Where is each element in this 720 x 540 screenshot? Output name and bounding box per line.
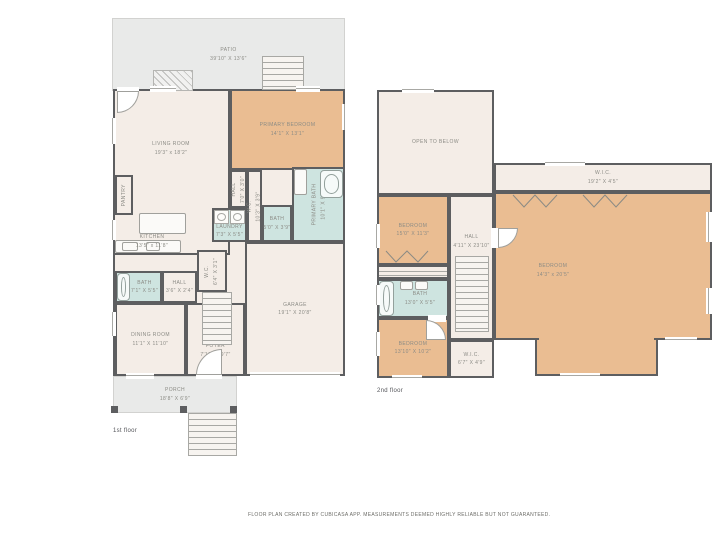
room-hall-lower: HALL 3'6" x 2'4"	[162, 271, 197, 303]
closet-bifold-icon	[582, 194, 628, 213]
window-marker	[110, 220, 116, 240]
room-name: BATH	[131, 279, 158, 288]
room-wc-upper: W.C. 10'3" x 3'9"	[247, 170, 262, 242]
room-wc-stairs-label: W.C. 6'4" x 3'1"	[204, 257, 221, 284]
room-kitchen-label: KITCHEN 13'5" x 11'8"	[117, 233, 187, 250]
room-dims: 5'0" x 3'9"	[263, 224, 290, 233]
room-name: DINING ROOM	[131, 331, 170, 340]
room-bedroom-left-top-label: BEDROOM 15'0" x 11'3"	[396, 222, 429, 239]
room-garage: GARAGE 19'1" x 20'8"	[245, 242, 345, 376]
room-dims: 13'5" x 11'8"	[117, 242, 187, 251]
room-wc-stairs: W.C. 6'4" x 3'1"	[197, 250, 227, 292]
room-name: BEDROOM	[518, 262, 588, 271]
room-dims: 13'0" x 5'5"	[405, 299, 435, 308]
room-open-to-below: OPEN TO BELOW	[377, 90, 494, 195]
room-dims: 18'8" x 6'9"	[160, 395, 190, 404]
kitchen-island	[139, 213, 186, 234]
room-primary-bedroom: PRIMARY BEDROOM 14'1" x 13'1"	[230, 89, 345, 170]
room-dims: 14'3" x 20'5"	[518, 271, 588, 280]
room-dims: 13'10" x 10'2"	[395, 348, 432, 357]
wall-opening-patch	[539, 336, 654, 343]
room-open-to-below-label: OPEN TO BELOW	[412, 138, 459, 147]
room-dims: 4'11" x 23'10"	[453, 242, 489, 251]
window-marker	[126, 373, 154, 379]
porch-staircase	[188, 413, 237, 456]
window-marker	[665, 337, 697, 343]
bathroom-vanity	[294, 169, 307, 195]
room-pantry: PANTRY	[115, 175, 133, 215]
bathroom-sink	[400, 281, 413, 290]
room-porch: PORCH 18'8" x 6'9"	[113, 376, 237, 413]
room-patio-label: PATIO 39'10" x 13'6"	[210, 46, 247, 63]
patio-door-marker	[150, 86, 176, 92]
room-name: OPEN TO BELOW	[412, 138, 459, 147]
window-marker	[392, 375, 422, 381]
window-marker	[374, 285, 380, 305]
room-name: HALL	[230, 175, 239, 202]
bathtub-icon	[117, 273, 130, 301]
room-name: BATH	[263, 215, 290, 224]
room-dims: 6'7" x 4'9"	[458, 359, 485, 368]
room-dims: 19'2" x 4'5"	[588, 178, 618, 187]
room-name: HALL	[166, 279, 193, 288]
interior-staircase	[202, 292, 232, 345]
closet-bifold-icon	[385, 250, 429, 268]
interior-staircase-floor2	[455, 256, 489, 332]
room-name: HALL	[464, 233, 478, 242]
room-bath-small-label: BATH 5'0" x 3'9"	[263, 215, 290, 232]
room-dims: 7'1" x 5'5"	[131, 287, 158, 296]
room-bedroom-right-label: BEDROOM 14'3" x 20'5"	[518, 262, 588, 279]
room-garage-label: GARAGE 19'1" x 20'8"	[278, 301, 311, 318]
window-marker	[296, 86, 320, 92]
room-bath-small: BATH 5'0" x 3'9"	[262, 205, 292, 242]
room-dims: 19'1" x 20'8"	[278, 309, 311, 318]
bathtub-icon	[379, 281, 394, 316]
room-dims: 11'1" x 11'10"	[131, 340, 170, 349]
room-porch-label: PORCH 18'8" x 6'9"	[160, 386, 190, 403]
room-bedroom-left-bottom-label: BEDROOM 13'10" x 10'2"	[395, 340, 432, 357]
room-name: LIVING ROOM	[133, 140, 209, 149]
window-marker	[110, 312, 116, 336]
dryer-icon	[230, 210, 245, 224]
window-marker	[374, 224, 380, 248]
room-pantry-label: PANTRY	[120, 184, 129, 206]
room-living-room-label: LIVING ROOM 19'3" x 18'2"	[133, 140, 209, 157]
window-marker	[545, 160, 585, 166]
footer-disclaimer: FLOOR PLAN CREATED BY CUBICASA APP. MEAS…	[248, 512, 550, 518]
room-name: PRIMARY BEDROOM	[260, 121, 316, 130]
room-name: BEDROOM	[395, 340, 432, 349]
room-wic-small-label: W.I.C. 6'7" x 4'9"	[458, 351, 485, 368]
porch-post	[230, 406, 237, 413]
room-name: BATH	[405, 290, 435, 299]
room-hall-upper: HALL 7'0" x 3'0"	[230, 170, 247, 208]
floor2-label: 2nd floor	[377, 388, 403, 394]
room-name: W.I.C.	[588, 169, 618, 178]
room-bath-floor2-label: BATH 13'0" x 5'5"	[391, 290, 435, 307]
room-name: BEDROOM	[396, 222, 429, 231]
washer-icon	[214, 210, 229, 224]
bedroom-door-gap	[491, 228, 498, 248]
room-name: KITCHEN	[117, 233, 187, 242]
room-dims: 15'0" x 11'3"	[396, 230, 429, 239]
room-name: GARAGE	[278, 301, 311, 310]
garage-door-marker	[250, 372, 340, 379]
room-wic-top: W.I.C. 19'2" x 4'5"	[494, 163, 712, 192]
closet-bifold-icon	[512, 194, 558, 213]
window-marker	[706, 288, 712, 314]
window-marker	[110, 118, 116, 144]
room-name: PANTRY	[120, 184, 129, 206]
room-wc-upper-label: W.C. 10'3" x 3'9"	[246, 191, 263, 221]
room-primary-bedroom-label: PRIMARY BEDROOM 14'1" x 13'1"	[260, 121, 316, 138]
room-dims: 3'6" x 2'4"	[166, 287, 193, 296]
room-dims: 39'10" x 13'6"	[210, 55, 247, 64]
room-hall-lower-label: HALL 3'6" x 2'4"	[166, 279, 193, 296]
floor1-label: 1st floor	[113, 428, 137, 434]
room-hall-floor2-label: HALL 4'11" x 23'10"	[451, 233, 492, 250]
patio-staircase	[262, 56, 304, 90]
room-name: PORCH	[160, 386, 190, 395]
window-marker	[706, 212, 712, 242]
room-dims: 7'3" x 5'5"	[216, 231, 243, 240]
floor-plan-canvas: PATIO 39'10" x 13'6" LIVING ROOM 19'3" x…	[0, 0, 720, 540]
room-name: PATIO	[210, 46, 247, 55]
room-dims: 6'4" x 3'1"	[212, 257, 221, 284]
room-wic-top-label: W.I.C. 19'2" x 4'5"	[588, 169, 618, 186]
room-bedroom-right-extension	[535, 338, 658, 376]
porch-post	[111, 406, 118, 413]
bathroom-sink	[415, 281, 428, 290]
porch-post	[180, 406, 187, 413]
room-dims: 19'3" x 18'2"	[133, 149, 209, 158]
window-marker	[402, 87, 434, 93]
room-hall-upper-label: HALL 7'0" x 3'0"	[230, 175, 247, 202]
room-name: PRIMARY BATH	[310, 184, 319, 226]
room-dining-room: DINING ROOM 11'1" x 11'10"	[115, 303, 186, 376]
bathtub-icon	[320, 170, 343, 198]
room-wic-small: W.I.C. 6'7" x 4'9"	[449, 340, 494, 378]
room-dining-room-label: DINING ROOM 11'1" x 11'10"	[131, 331, 170, 348]
room-dims: 14'1" x 13'1"	[260, 130, 316, 139]
window-marker	[342, 104, 348, 130]
window-marker	[560, 373, 600, 379]
room-patio: PATIO 39'10" x 13'6"	[112, 18, 345, 91]
window-marker	[374, 332, 380, 356]
room-name: W.I.C.	[458, 351, 485, 360]
